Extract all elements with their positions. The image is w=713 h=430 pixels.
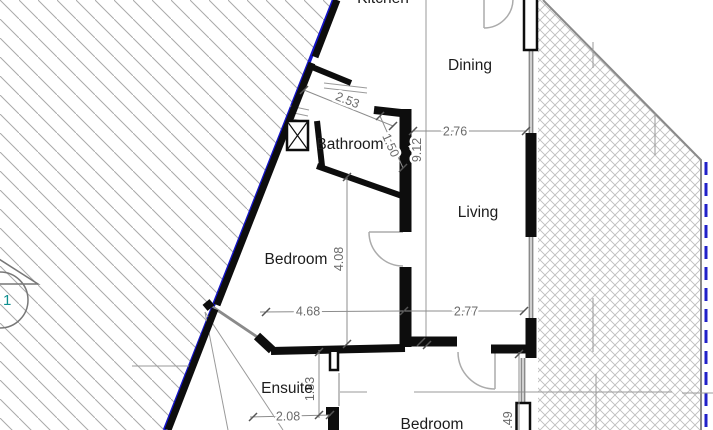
bottom-wall [271, 348, 405, 351]
dimension-dining-width: 2.76 [443, 125, 467, 139]
floor-plan: 1 [0, 0, 713, 430]
dining-door-arc [484, 0, 513, 28]
room-label-bedroom: Bedroom [265, 251, 328, 268]
floor-plan-svg: 1 [0, 0, 713, 430]
room-label-bedroom2: Bedroom [401, 416, 464, 430]
dimension-bedroom-width: 4.68 [296, 305, 320, 319]
dimension-plan-height: 9.12 [410, 138, 424, 162]
room-label-bathroom: Bathroom [316, 136, 383, 153]
room-label-ensuite: Ensuite [261, 380, 313, 397]
dimension-wall-offset: .49 [501, 411, 515, 428]
window-top-right [524, 0, 537, 50]
bathroom-wall [317, 166, 405, 197]
section-marker-label: 1 [3, 292, 11, 309]
kitchen-divider-wall [312, 67, 351, 83]
dimension-living-width: 2.77 [454, 305, 478, 319]
bedroom-door-arc [369, 232, 403, 266]
room-label-dining: Dining [448, 57, 492, 74]
room-label-living: Living [458, 204, 499, 221]
shaft-box [287, 121, 308, 150]
neighbor-hatch-right [538, 0, 701, 430]
dimension-ensuite-width: 2.08 [276, 410, 300, 424]
dimension-bedroom-height: 4.08 [332, 247, 346, 271]
bedroom2-door-arc [458, 352, 495, 389]
wall-pier [330, 352, 338, 370]
room-label-kitchen: Kitchen [357, 0, 409, 7]
